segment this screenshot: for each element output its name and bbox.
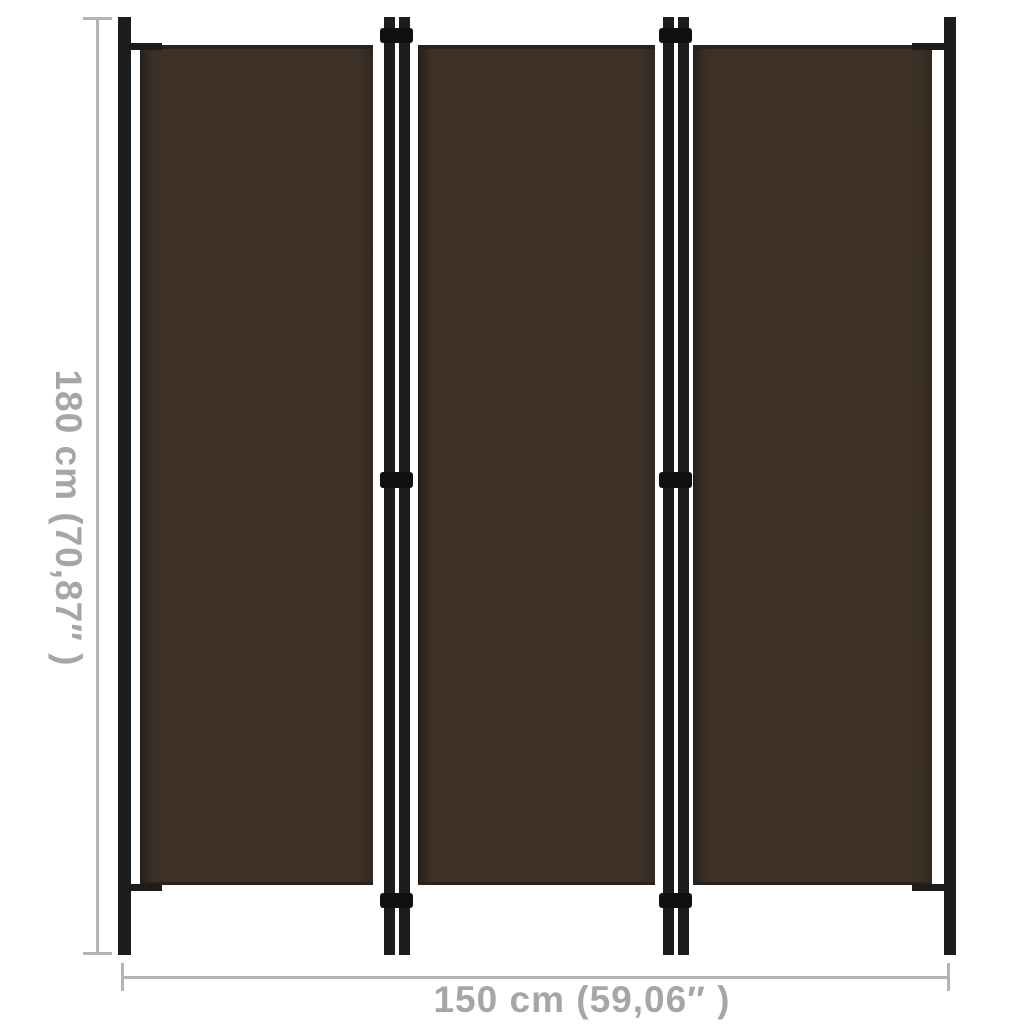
frame-crossbar-bottom-left — [128, 884, 162, 891]
frame-crossbar-top-right — [912, 43, 946, 50]
hinge-junction2-bottom — [659, 893, 692, 908]
width-dimension-cap-left — [121, 963, 124, 991]
hinge-junction2-top — [659, 28, 692, 43]
frame-crossbar-bottom-right — [912, 884, 946, 891]
hinge-junction2-middle — [659, 472, 692, 488]
width-dimension-cap-right — [947, 963, 950, 991]
hinge-junction1-bottom — [380, 893, 413, 908]
frame-pole-left — [118, 17, 131, 955]
height-dimension-line — [96, 18, 99, 955]
height-dimension-cap-top — [83, 17, 112, 20]
divider-panel-2 — [418, 45, 655, 885]
divider-panel-3 — [693, 45, 932, 885]
frame-crossbar-top-left — [128, 43, 162, 50]
height-dimension-label: 180 cm (70,87″ ) — [48, 368, 88, 668]
divider-panel-1 — [140, 45, 373, 885]
frame-pole-right — [944, 17, 956, 955]
hinge-junction1-top — [380, 28, 413, 43]
height-dimension-cap-bottom — [83, 952, 112, 955]
product-dimension-diagram: 180 cm (70,87″ ) 150 cm (59,06″ ) — [0, 0, 1024, 1024]
width-dimension-label: 150 cm (59,06″ ) — [382, 980, 782, 1020]
hinge-junction1-middle — [380, 472, 413, 488]
